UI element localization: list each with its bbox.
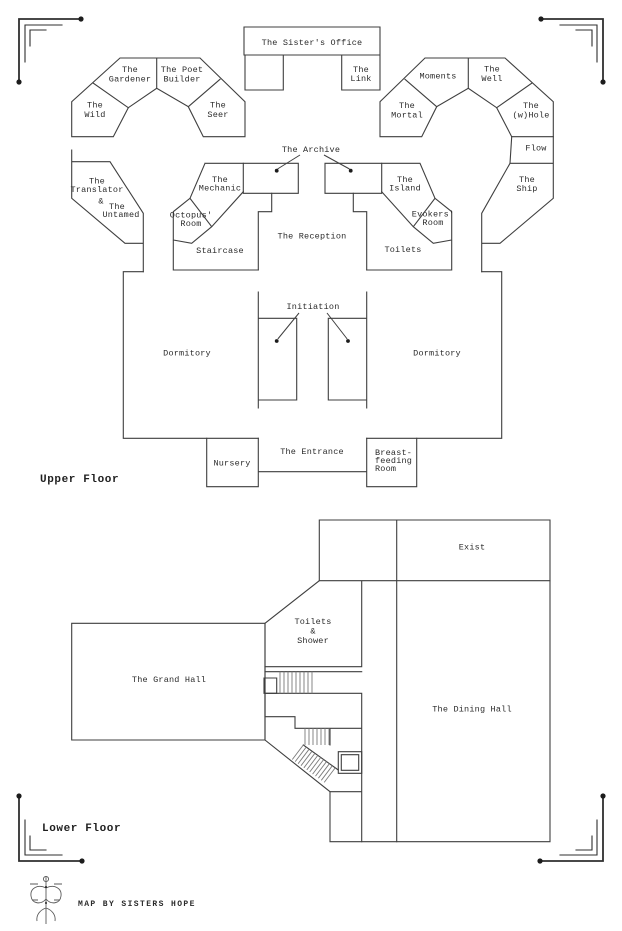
- stair-treads-middle: [305, 728, 329, 745]
- room-label-seer: TheSeer: [207, 101, 228, 121]
- room-label-moments: Moments: [419, 72, 456, 82]
- initiation-dot-left: [275, 339, 279, 343]
- corner-ornament-bottom-right: [537, 793, 605, 863]
- archive-leader-lines: [278, 155, 350, 169]
- room-label-exist: Exist: [459, 543, 486, 553]
- room-label-breastfeeding: Breast-feedingRoom: [375, 448, 412, 474]
- room-label-mortal: TheMortal: [391, 101, 423, 121]
- room-label-dormitory-right: Dormitory: [413, 349, 461, 359]
- room-label-entrance: The Entrance: [280, 447, 344, 457]
- room-label-link: TheLink: [350, 65, 371, 84]
- map-footer: MAP BY SISTERS HOPE: [30, 876, 196, 924]
- room-label-dormitory-left: Dormitory: [163, 349, 211, 359]
- room-label-evokers: Evokers'Room: [412, 210, 454, 229]
- archive-dot-right: [349, 169, 353, 173]
- room-label-well: TheWell: [481, 65, 502, 85]
- room-label-reception: The Reception: [278, 232, 347, 242]
- upper-floor-labels: The Sister's Office TheLink TheGardener …: [40, 38, 550, 486]
- room-label-toilets-shower: Toilets&Shower: [294, 617, 331, 646]
- room-label-gardener: TheGardener: [109, 65, 151, 85]
- elevator-shaft: [338, 752, 361, 774]
- room-label-translator-untamed: TheTranslator&TheUntamed: [70, 177, 139, 221]
- sisters-hope-logo-icon: [30, 876, 62, 924]
- room-label-archive: The Archive: [282, 145, 340, 155]
- room-label-ship: TheShip: [516, 175, 537, 194]
- upper-floor-title: Upper Floor: [40, 474, 119, 486]
- archive-dot-left: [275, 169, 279, 173]
- archive-walls: [243, 163, 381, 193]
- room-label-wild: TheWild: [84, 101, 105, 121]
- corner-ornament-top-right: [538, 16, 605, 84]
- room-label-staircase: Staircase: [196, 246, 244, 256]
- room-label-sisters-office: The Sister's Office: [262, 38, 363, 48]
- room-label-toilets-upper: Toilets: [384, 245, 421, 255]
- flow-ship-walls: [482, 137, 554, 272]
- room-label-octopus: Octopus'Room: [170, 211, 212, 230]
- room-label-dining-hall: The Dining Hall: [432, 705, 512, 715]
- stair-landing-box: [264, 678, 277, 693]
- upper-floor-walls: [72, 27, 554, 487]
- right-ring-outline: [380, 58, 553, 137]
- room-label-island: TheIsland: [389, 175, 421, 194]
- corner-ornament-top-left: [16, 16, 83, 84]
- room-label-initiation: Initiation: [286, 302, 339, 312]
- map-credit-text: MAP BY SISTERS HOPE: [78, 900, 196, 909]
- left-ring-outline: [72, 58, 245, 137]
- room-label-nursery: Nursery: [213, 459, 250, 469]
- room-label-flow: Flow: [525, 144, 547, 154]
- initiation-dot-right: [346, 339, 350, 343]
- floor-plan-svg: The Sister's Office TheLink TheGardener …: [0, 0, 622, 931]
- room-label-poet-builder: The PoetBuilder: [161, 65, 203, 85]
- initiation-leader-lines: [278, 313, 347, 339]
- stair-treads-top: [280, 672, 312, 694]
- room-label-mechanic: TheMechanic: [199, 175, 241, 194]
- room-label-whole: The(w)Hole: [512, 101, 549, 121]
- lower-floor-title: Lower Floor: [42, 823, 121, 835]
- floor-plan-page: The Sister's Office TheLink TheGardener …: [0, 0, 622, 931]
- room-label-grand-hall: The Grand Hall: [132, 675, 206, 685]
